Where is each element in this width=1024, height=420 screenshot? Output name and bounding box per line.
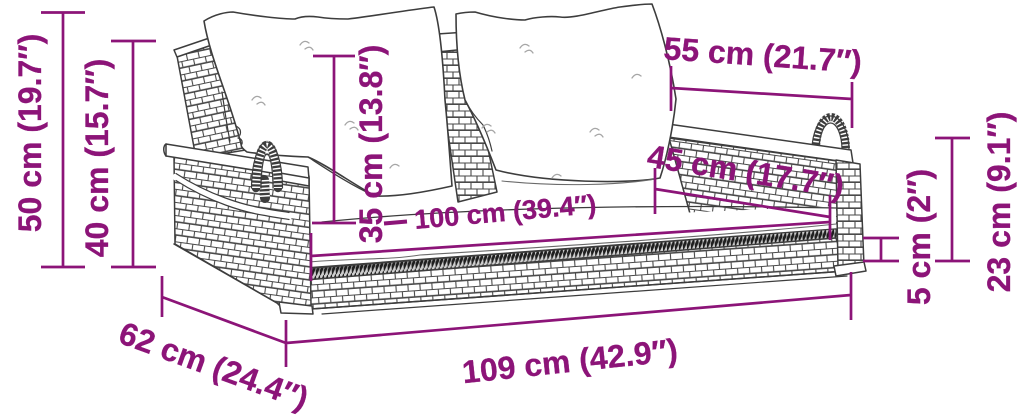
svg-text:40 cm (15.7″): 40 cm (15.7″) bbox=[79, 59, 115, 258]
svg-text:50 cm (19.7″): 50 cm (19.7″) bbox=[12, 34, 48, 233]
svg-text:5 cm (2″): 5 cm (2″) bbox=[901, 169, 937, 305]
svg-text:35 cm (13.8″): 35 cm (13.8″) bbox=[353, 45, 389, 244]
svg-text:23 cm (9.1″): 23 cm (9.1″) bbox=[981, 112, 1017, 293]
